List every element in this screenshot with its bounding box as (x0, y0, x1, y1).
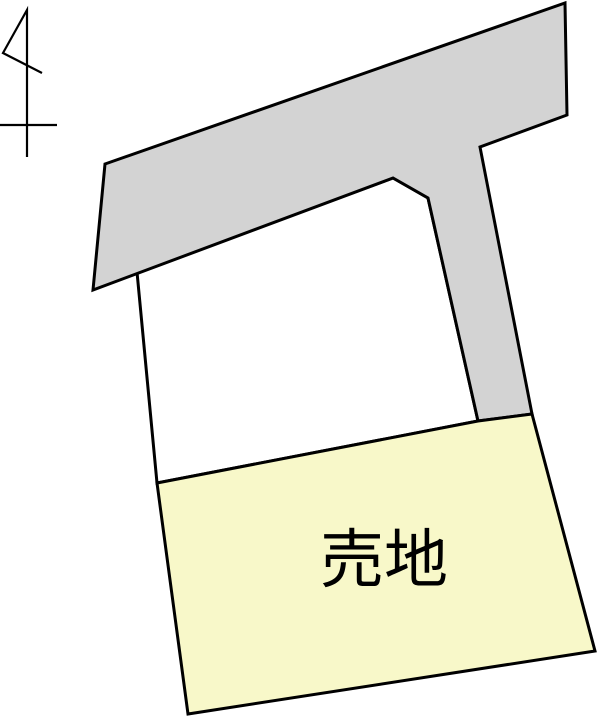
plot-map-canvas: 売地 (0, 0, 600, 718)
north-arrow-icon (0, 10, 57, 157)
sale-land-label: 売地 (320, 524, 448, 596)
map-container: 売地 (0, 0, 600, 718)
